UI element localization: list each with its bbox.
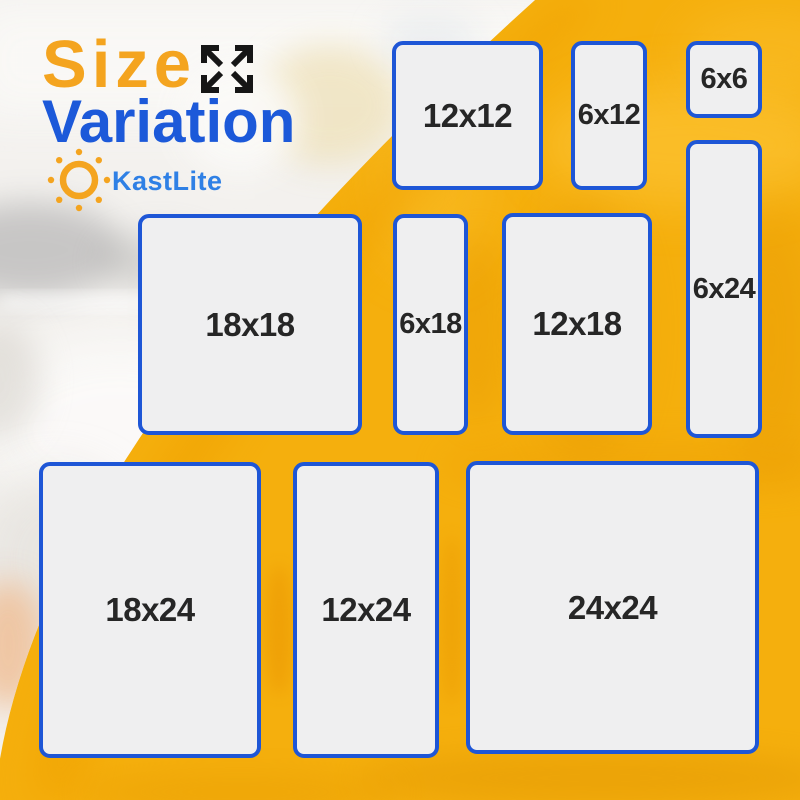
- size-tile-6x18: 6x18: [393, 214, 468, 435]
- size-tile-6x12: 6x12: [571, 41, 647, 190]
- size-tile-12x18: 12x18: [502, 213, 652, 435]
- size-label: 6x6: [701, 63, 748, 96]
- size-tile-6x24: 6x24: [686, 140, 762, 438]
- brand-name: KastLite: [112, 166, 223, 197]
- size-tile-18x18: 18x18: [138, 214, 362, 435]
- size-tile-12x12: 12x12: [392, 41, 543, 190]
- size-tile-18x24: 18x24: [39, 462, 261, 758]
- size-tile-24x24: 24x24: [466, 461, 759, 754]
- size-tile-12x24: 12x24: [293, 462, 439, 758]
- size-label: 6x18: [399, 308, 462, 341]
- size-label: 12x12: [423, 97, 512, 135]
- product-size-infographic: Size Variation KastLite 12x12 6x: [0, 0, 800, 800]
- size-tile-6x6: 6x6: [686, 41, 762, 118]
- size-label: 18x18: [205, 306, 294, 344]
- brand-logo: KastLite: [44, 145, 344, 217]
- sun-icon: [44, 145, 114, 215]
- size-label: 6x24: [693, 273, 756, 306]
- size-label: 6x12: [578, 99, 641, 132]
- size-label: 12x18: [532, 305, 621, 343]
- size-label: 12x24: [321, 591, 410, 629]
- size-label: 18x24: [105, 591, 194, 629]
- page-title-variation: Variation: [42, 92, 295, 152]
- size-label: 24x24: [568, 589, 657, 627]
